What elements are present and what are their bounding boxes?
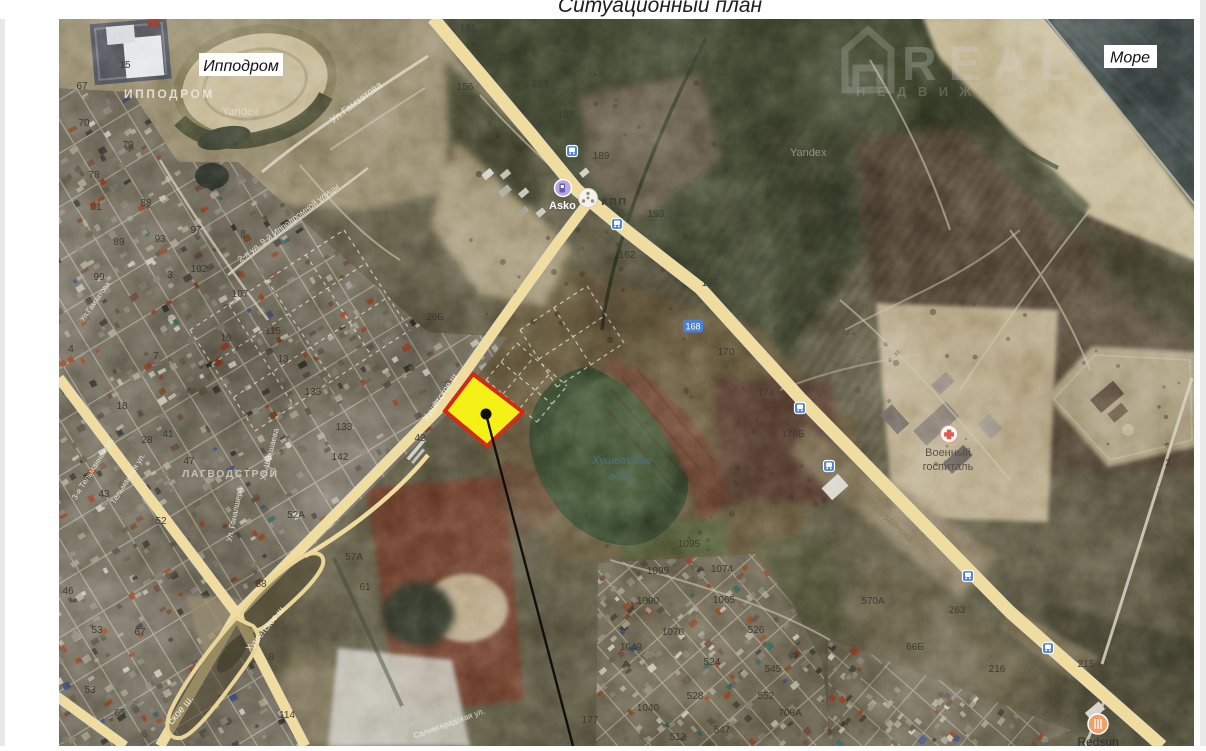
svg-text:57А: 57А (345, 552, 363, 563)
svg-text:ЛАГВОДСТРОЙ: ЛАГВОДСТРОЙ (182, 467, 279, 480)
svg-text:1049: 1049 (620, 642, 643, 653)
svg-text:215: 215 (1078, 659, 1095, 670)
svg-text:67: 67 (134, 627, 146, 638)
svg-text:кпп: кпп (601, 193, 628, 208)
svg-text:526: 526 (748, 625, 765, 636)
svg-text:135: 135 (305, 387, 322, 398)
svg-text:114: 114 (279, 710, 295, 721)
svg-text:Yandex: Yandex (222, 106, 259, 118)
svg-text:28: 28 (141, 435, 153, 446)
svg-text:Redsun: Redsun (1077, 735, 1118, 746)
svg-text:8: 8 (268, 652, 274, 663)
svg-text:195: 195 (702, 278, 719, 289)
svg-text:53: 53 (91, 625, 103, 636)
svg-text:78: 78 (88, 170, 100, 181)
svg-text:547: 547 (714, 725, 731, 736)
svg-text:193: 193 (648, 209, 665, 220)
svg-text:176Б: 176Б (781, 429, 805, 440)
svg-text:174: 174 (758, 388, 775, 399)
svg-text:263: 263 (949, 605, 966, 616)
svg-text:18: 18 (116, 401, 128, 412)
svg-text:1065: 1065 (713, 595, 736, 606)
svg-text:88: 88 (140, 198, 152, 209)
svg-text:187: 187 (558, 110, 575, 121)
svg-text:524: 524 (704, 657, 721, 668)
svg-text:52: 52 (155, 516, 167, 527)
svg-text:93: 93 (154, 234, 166, 245)
svg-text:170: 170 (718, 347, 735, 358)
svg-text:52А: 52А (287, 510, 305, 521)
svg-text:156: 156 (457, 82, 474, 93)
svg-text:Море: Море (1110, 50, 1150, 67)
svg-text:41: 41 (162, 429, 174, 440)
svg-text:189: 189 (593, 151, 610, 162)
svg-text:43: 43 (98, 489, 110, 500)
svg-text:97: 97 (190, 225, 202, 236)
svg-text:162: 162 (619, 250, 636, 261)
svg-text:8: 8 (240, 229, 246, 240)
svg-text:70: 70 (78, 118, 90, 129)
svg-text:58: 58 (255, 579, 267, 590)
svg-text:65: 65 (114, 708, 126, 719)
svg-text:Военный: Военный (925, 447, 971, 459)
svg-text:47: 47 (183, 456, 195, 467)
svg-text:19: 19 (220, 333, 232, 344)
svg-text:7: 7 (153, 351, 159, 362)
svg-text:107: 107 (232, 289, 249, 300)
svg-text:1070: 1070 (662, 627, 685, 638)
svg-text:142: 142 (332, 452, 349, 463)
svg-text:Ипподром: Ипподром (203, 58, 279, 75)
svg-text:1074: 1074 (711, 564, 734, 575)
svg-text:53: 53 (84, 685, 96, 696)
svg-text:67: 67 (76, 81, 88, 92)
svg-text:545: 545 (765, 664, 782, 675)
svg-text:1090: 1090 (637, 596, 660, 607)
svg-text:168: 168 (685, 322, 700, 332)
svg-text:177: 177 (582, 715, 599, 726)
svg-text:Хушетское: Хушетское (591, 455, 652, 467)
svg-text:1040: 1040 (637, 703, 660, 714)
svg-text:61: 61 (359, 582, 371, 593)
svg-text:1099: 1099 (647, 566, 670, 577)
svg-text:1095: 1095 (678, 539, 701, 550)
svg-text:115: 115 (265, 326, 281, 337)
svg-text:181: 181 (460, 23, 477, 34)
svg-text:ИППОДРОМ: ИППОДРОМ (124, 87, 215, 101)
svg-text:3: 3 (167, 270, 173, 281)
svg-text:133: 133 (336, 422, 353, 433)
svg-text:НЕДВИЖИМОСТЬ: НЕДВИЖИМОСТЬ (856, 84, 1108, 99)
svg-text:Ситуационный план: Ситуационный план (558, 0, 763, 17)
svg-text:102: 102 (191, 264, 208, 275)
svg-text:79: 79 (122, 140, 134, 151)
svg-text:вдхр.: вдхр. (609, 471, 635, 483)
svg-text:528: 528 (687, 691, 704, 702)
svg-text:552: 552 (758, 691, 775, 702)
svg-text:570А: 570А (861, 596, 885, 607)
svg-text:13: 13 (277, 354, 289, 365)
svg-text:15: 15 (119, 60, 131, 71)
svg-text:216: 216 (989, 664, 1006, 675)
svg-text:42: 42 (414, 433, 426, 444)
svg-text:Asko: Asko (549, 200, 576, 212)
svg-text:89: 89 (113, 237, 125, 248)
svg-text:185: 185 (532, 79, 549, 90)
svg-text:26Б: 26Б (426, 312, 444, 323)
svg-text:512: 512 (670, 732, 687, 743)
svg-text:Yandex: Yandex (790, 147, 827, 159)
svg-text:183: 183 (498, 53, 515, 64)
svg-text:81: 81 (90, 202, 102, 213)
svg-text:46: 46 (62, 586, 74, 597)
svg-text:3: 3 (1165, 458, 1171, 469)
svg-text:4: 4 (68, 344, 74, 355)
svg-text:708А: 708А (778, 708, 802, 719)
svg-text:66Б: 66Б (906, 642, 924, 653)
svg-text:госпиталь: госпиталь (923, 461, 974, 473)
